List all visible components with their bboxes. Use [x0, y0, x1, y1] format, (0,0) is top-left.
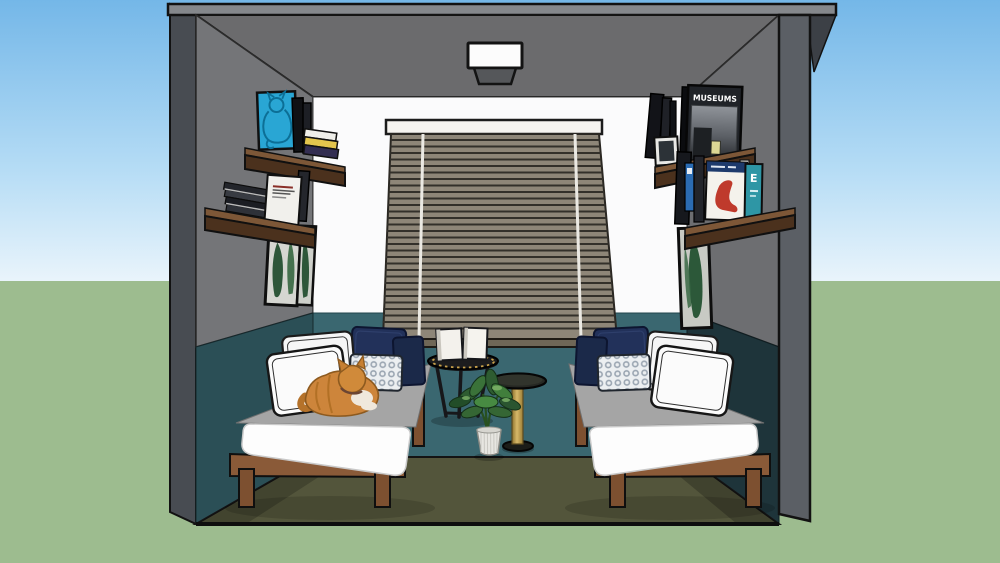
plant-pot-rim: [477, 427, 501, 433]
book-dark: [694, 156, 704, 222]
blind-valance: [386, 120, 602, 134]
exterior-left-wall: [170, 4, 196, 524]
teal-book: E: [745, 164, 763, 218]
pedestal-top-surface: [494, 375, 543, 386]
small-framed-photo: [654, 136, 678, 165]
magazine-white: [264, 175, 301, 225]
book-stack-upper: [302, 129, 341, 159]
cat-paw: [361, 402, 377, 411]
ceiling-light: [468, 43, 522, 84]
front-right-column: [779, 15, 810, 521]
museums-book-title: MUSEUMS: [693, 93, 738, 104]
pedestal-column: [512, 384, 523, 444]
cat-art-print: [257, 91, 297, 149]
scene-render: MUSEUMS E: [0, 0, 1000, 563]
chair-design-book: [705, 161, 747, 220]
light-shade: [474, 68, 516, 84]
viewport: MUSEUMS E: [0, 0, 1000, 563]
window-blinds: [382, 120, 618, 347]
teal-book-letter: E: [750, 172, 758, 185]
front-top-edge: [168, 4, 836, 15]
table-book-2: [463, 328, 487, 360]
table-book-1: [436, 328, 463, 360]
